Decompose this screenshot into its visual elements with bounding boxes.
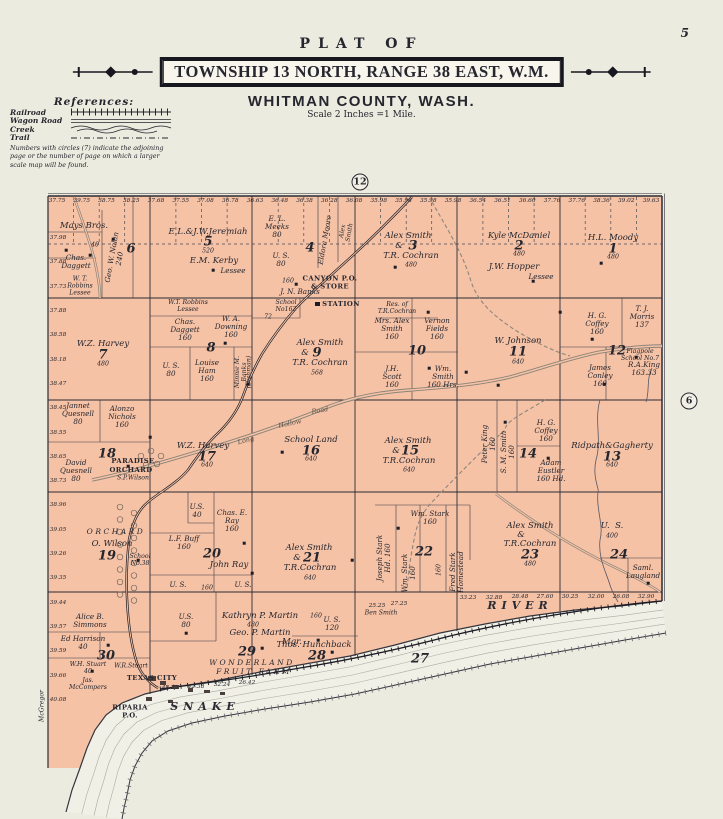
station-marker: [315, 302, 320, 306]
township-plat-map: [0, 0, 723, 819]
plat-map-page: 5 PLAT OF TOWNSHIP 13 NORTH, RANGE 38 EA…: [0, 0, 723, 819]
